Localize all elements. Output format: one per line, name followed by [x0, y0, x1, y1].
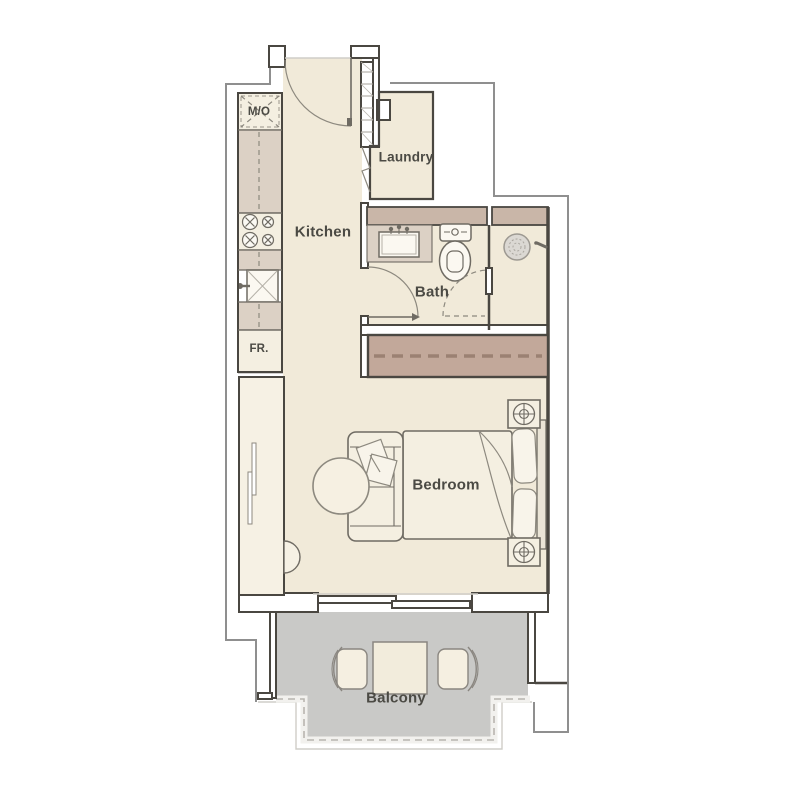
entry-left-jamb	[269, 46, 285, 67]
balcony-chair-icon	[332, 647, 367, 691]
kitchen-cabinets	[237, 93, 282, 372]
headboard	[537, 420, 546, 549]
balcony-furniture	[332, 642, 478, 694]
vanity-sink-icon	[367, 225, 432, 262]
balcony-table-icon	[373, 642, 427, 694]
shaft-hatch-icon	[361, 62, 373, 147]
appliance-label-microwave-oven: M/O	[248, 106, 270, 118]
room-label-kitchen: Kitchen	[295, 224, 351, 241]
sliding-glass-door-icon	[313, 594, 478, 608]
toilet-icon	[440, 224, 472, 281]
room-label-bedroom: Bedroom	[412, 477, 479, 494]
room-label-bath: Bath	[415, 284, 449, 301]
shower-drain-icon	[504, 234, 530, 260]
appliance-label-fridge: FR.	[249, 343, 268, 355]
entry-right-jamb	[351, 46, 379, 58]
nightstand-lamp-icon	[508, 538, 540, 566]
room-label-laundry: Laundry	[379, 150, 434, 165]
laundry-bifold-door-icon	[362, 147, 370, 192]
floor-plan-drawing	[0, 0, 800, 800]
nightstand-lamp-icon	[508, 400, 540, 428]
room-label-balcony: Balcony	[366, 690, 426, 707]
kitchen-sink-icon	[237, 270, 278, 302]
sliding-wardrobe-icon	[368, 335, 548, 377]
floor-plan: Kitchen Laundry Bath Bedroom Balcony M/O…	[0, 0, 800, 800]
round-table-icon	[313, 458, 369, 514]
